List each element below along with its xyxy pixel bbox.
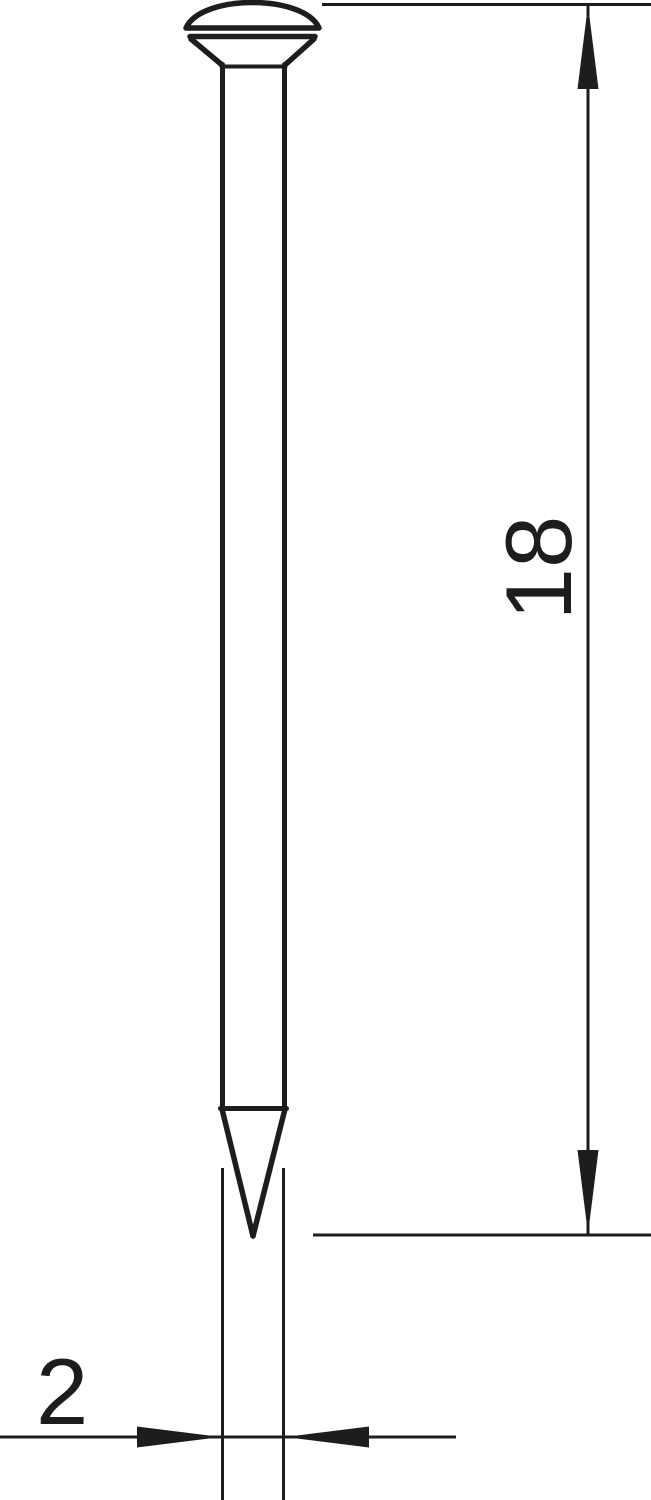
- drawing-background: [0, 0, 651, 1500]
- technical-drawing-page: 18 2: [0, 0, 651, 1500]
- diameter-dimension-label: 2: [36, 1339, 88, 1444]
- length-dimension-label: 18: [486, 516, 591, 621]
- nail-technical-drawing: 18 2: [0, 0, 651, 1500]
